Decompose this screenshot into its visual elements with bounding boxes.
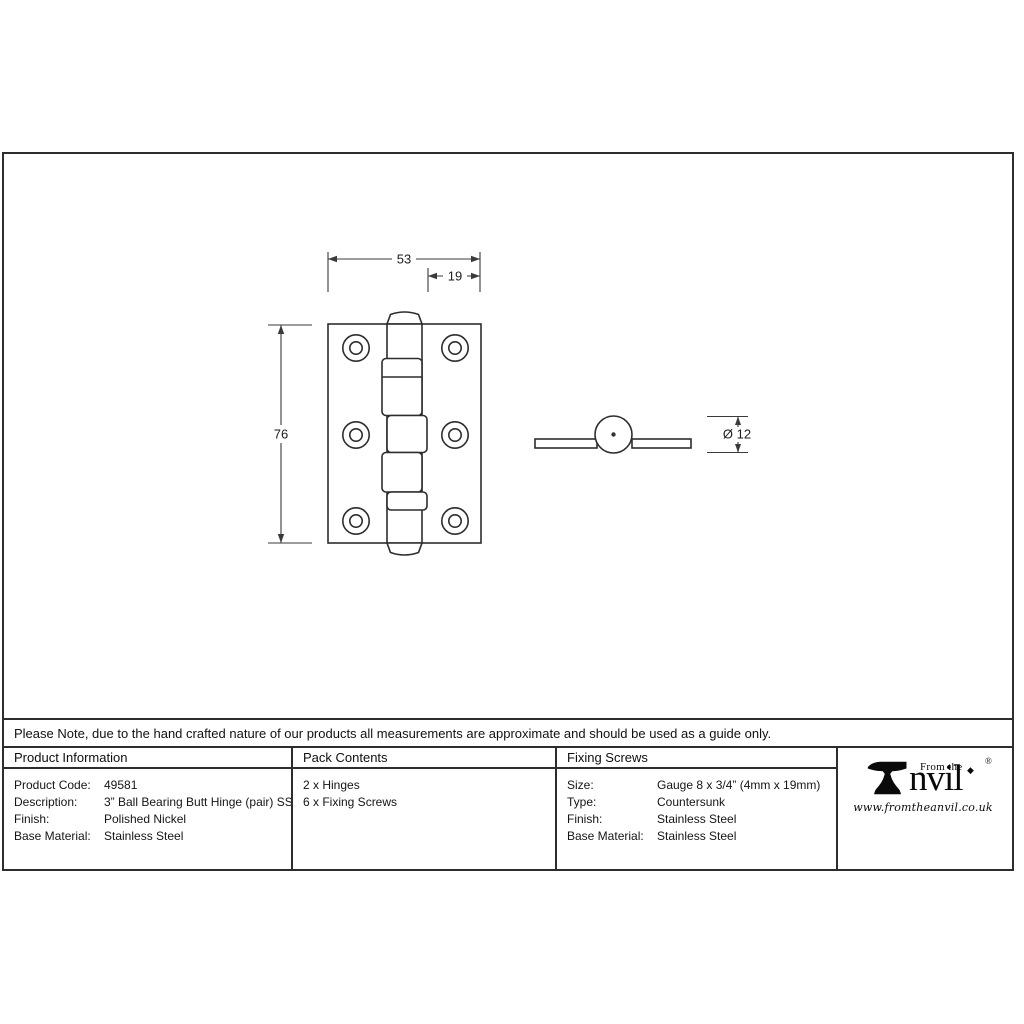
fixing-screws-header: Fixing Screws [557, 748, 836, 769]
dim-width-label: 53 [397, 252, 411, 267]
column-pack-contents: Pack Contents 2 x Hinges 6 x Fixing Scre… [291, 748, 555, 869]
pin-top-cap [387, 312, 422, 324]
spec-label: Finish: [14, 812, 104, 826]
pack-item: 6 x Fixing Screws [303, 793, 555, 810]
spec-value: Gauge 8 x 3/4” (4mm x 19mm) [657, 778, 820, 792]
spec-label: Finish: [567, 812, 657, 826]
spec-label: Product Code: [14, 778, 104, 792]
brand-name: nvil [909, 760, 963, 797]
dim-diameter-label: Ø 12 [723, 427, 751, 442]
spec-row-type: Type: Countersunk [567, 793, 836, 810]
spec-label: Description: [14, 795, 104, 809]
info-table: Product Information Product Code: 49581 … [4, 746, 1012, 869]
product-information-header: Product Information [4, 748, 291, 769]
spec-label: Base Material: [14, 829, 104, 843]
knuckle-segment [382, 359, 422, 416]
screw-hole [442, 422, 468, 448]
hinge-side-view [535, 416, 691, 453]
spec-row-size: Size: Gauge 8 x 3/4” (4mm x 19mm) [567, 776, 836, 793]
screw-hole [343, 422, 369, 448]
spec-value: Countersunk [657, 795, 725, 809]
spec-row-product-code: Product Code: 49581 [14, 776, 291, 793]
pack-item: 2 x Hinges [303, 776, 555, 793]
side-leaf-right [632, 439, 691, 448]
knuckle-segment [387, 492, 427, 510]
knuckle-segment [382, 453, 422, 493]
note-text: Please Note, due to the hand crafted nat… [14, 726, 771, 741]
screw-hole [343, 335, 369, 361]
spec-row-screw-finish: Finish: Stainless Steel [567, 810, 836, 827]
pack-contents-header: Pack Contents [293, 748, 555, 769]
knuckle-segment [387, 416, 427, 453]
dimension-diameter-12: Ø 12 [707, 417, 755, 453]
sheet-frame: 53 19 76 [2, 152, 1014, 871]
hinge-technical-drawing: 53 19 76 [0, 0, 1024, 724]
screw-hole [343, 508, 369, 534]
screw-hole [442, 335, 468, 361]
dimension-offset-19: 19 [428, 267, 480, 292]
spec-row-screw-base-material: Base Material: Stainless Steel [567, 827, 836, 844]
side-leaf-left [535, 439, 597, 448]
brand-website: www.fromtheanvil.co.uk [838, 801, 1008, 814]
hinge-front-view [328, 312, 481, 555]
column-product-information: Product Information Product Code: 49581 … [4, 748, 291, 869]
spec-value: Stainless Steel [657, 812, 736, 826]
dim-height-label: 76 [274, 427, 288, 442]
star-icon: ◆ [967, 765, 974, 776]
technical-drawing-area: 53 19 76 [4, 154, 1012, 718]
dimension-height-76: 76 [268, 325, 312, 543]
spec-value: 49581 [104, 778, 137, 792]
spec-value: Polished Nickel [104, 812, 186, 826]
spec-label: Type: [567, 795, 657, 809]
spec-value: 3” Ball Bearing Butt Hinge (pair) SS [104, 795, 293, 809]
column-fixing-screws: Fixing Screws Size: Gauge 8 x 3/4” (4mm … [555, 748, 836, 869]
screw-hole [442, 508, 468, 534]
column-brand: From the ◆ ® nvil www.fromtheanvil.co.uk [836, 748, 1012, 869]
anvil-icon [866, 759, 909, 797]
spec-label: Size: [567, 778, 657, 792]
spec-sheet-page: { "note": "Please Note, due to the hand … [0, 0, 1024, 1024]
registered-mark: ® [985, 756, 992, 766]
pin-bottom-cap [387, 543, 422, 555]
spec-row-finish: Finish: Polished Nickel [14, 810, 291, 827]
from-the-anvil-logo: From the ◆ ® nvil www.fromtheanvil.co.uk [838, 748, 1012, 869]
side-pin-center [611, 432, 615, 436]
spec-row-description: Description: 3” Ball Bearing Butt Hinge … [14, 793, 291, 810]
dim-offset-label: 19 [448, 269, 462, 284]
spec-label: Base Material: [567, 829, 657, 843]
spec-value: Stainless Steel [657, 829, 736, 843]
spec-row-base-material: Base Material: Stainless Steel [14, 827, 291, 844]
spec-value: Stainless Steel [104, 829, 183, 843]
